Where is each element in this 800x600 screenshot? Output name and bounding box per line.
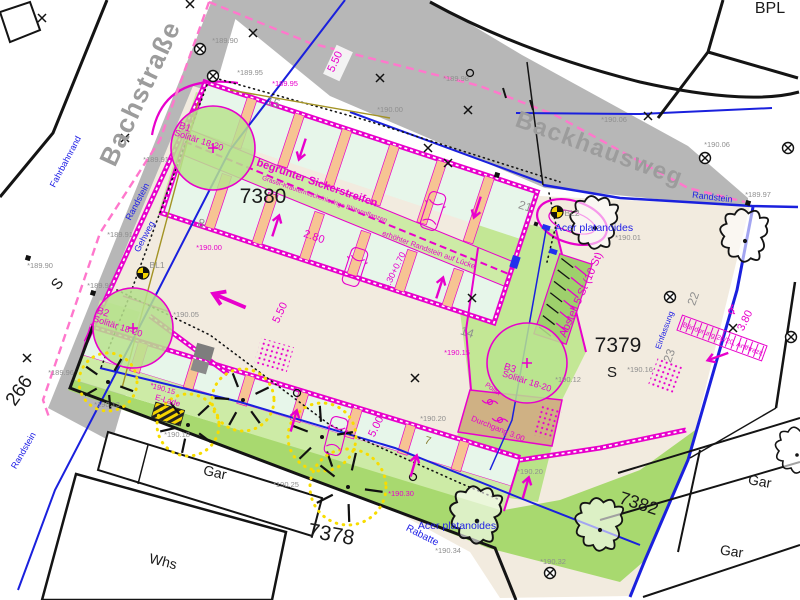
manhole-icon xyxy=(786,332,797,343)
magenta_notes-1: *190.00 xyxy=(196,243,222,252)
existing-tree-tick xyxy=(215,398,230,399)
elevations-15: *190.18 xyxy=(164,430,190,439)
elevations-18: *190.16 xyxy=(627,365,653,374)
magenta_notes-5: *190.30 xyxy=(388,489,414,498)
elevations-3: *189.91 xyxy=(107,230,133,239)
elevations-20: *190.20 xyxy=(517,467,543,476)
elevations-5: *189.92 xyxy=(87,281,113,290)
magenta_notes-0: *189.95 xyxy=(272,79,298,88)
elevations-12: *190.01 xyxy=(615,233,641,242)
manhole-icon xyxy=(700,153,711,164)
elevations-7: *189.98 xyxy=(443,74,469,83)
valve-icon xyxy=(137,267,149,279)
existing-tree-tick xyxy=(320,406,321,422)
label-s-7379: S xyxy=(607,364,617,381)
label-bpl: BPL xyxy=(755,0,785,17)
elevations-14: *190.13 xyxy=(94,400,120,409)
manhole-icon xyxy=(545,568,556,579)
manhole-icon xyxy=(783,143,794,154)
valve-icon xyxy=(551,206,563,218)
building-gar-3: Gar xyxy=(719,542,745,561)
existing-tree-center xyxy=(346,485,350,489)
elevations-19: *190.20 xyxy=(420,414,446,423)
existing-tree-center xyxy=(186,423,190,427)
elevations-1: *189.95 xyxy=(237,68,263,77)
elevations-16: *190.25 xyxy=(273,480,299,489)
elevations-10: *190.06 xyxy=(704,140,730,149)
existing-tree-tick xyxy=(349,504,350,522)
site-plan-drawing: BachstraßeBackhauswegFahrbahnrandRandste… xyxy=(0,0,800,600)
elevations-4: *189.90 xyxy=(27,261,53,270)
existing-tree-center xyxy=(241,398,245,402)
elevations-0: *189.90 xyxy=(212,36,238,45)
elevations-2: *189.91 xyxy=(143,155,169,164)
parcel-7379: 7379 xyxy=(595,334,642,357)
elevations-8: *190.00 xyxy=(377,105,403,114)
magenta_notes-2: *190.15 xyxy=(444,348,470,357)
elevations-17: *190.12 xyxy=(555,375,581,384)
stall_numbers-8: BL2 xyxy=(564,208,579,218)
manhole-icon xyxy=(195,44,206,55)
elevations-21: *190.34 xyxy=(435,546,461,555)
existing-tree-center xyxy=(320,435,324,439)
elevations-22: *190.32 xyxy=(540,557,566,566)
label-acer-bottom: Acer platanoides xyxy=(418,520,496,532)
parcel-7380: 7380 xyxy=(240,185,287,208)
manhole-icon xyxy=(665,292,676,303)
elevations-6: *189.96 xyxy=(48,368,74,377)
elevations-11: *189.97 xyxy=(745,190,771,199)
elevations-9: *190.06 xyxy=(601,115,627,124)
elevations-13: *190.05 xyxy=(173,310,199,319)
manhole-icon xyxy=(208,71,219,82)
stall_numbers-7: BL1 xyxy=(149,260,164,270)
existing-tree-center xyxy=(106,380,110,384)
